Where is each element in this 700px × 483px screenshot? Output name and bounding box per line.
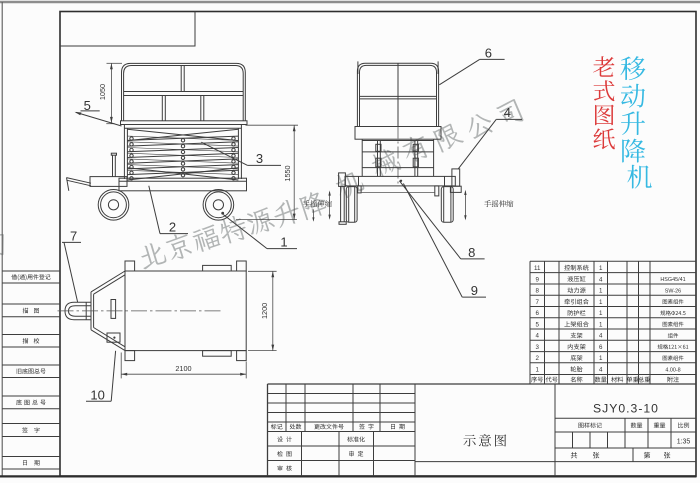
svg-text:7: 7 [70,228,77,243]
svg-text:1: 1 [599,288,603,295]
svg-text:8: 8 [468,245,475,260]
svg-text:6: 6 [599,344,603,351]
svg-text:4: 4 [504,105,511,120]
svg-text:1: 1 [535,367,539,374]
svg-text:1: 1 [599,299,603,306]
svg-text:5: 5 [535,321,539,328]
svg-text:6: 6 [485,46,492,61]
svg-text:8: 8 [535,288,539,295]
svg-text:4: 4 [599,276,603,283]
svg-text:1: 1 [599,355,603,362]
svg-text:1: 1 [599,310,603,317]
svg-text:9: 9 [471,283,478,298]
svg-text:3: 3 [535,344,539,351]
svg-text:5: 5 [84,98,91,113]
svg-text:2: 2 [169,219,176,234]
svg-text:1: 1 [599,321,603,328]
svg-text:4: 4 [599,367,603,374]
svg-text:11: 11 [534,265,541,272]
svg-text:6: 6 [535,310,539,317]
svg-text:1050: 1050 [98,84,107,100]
svg-text:2100: 2100 [175,364,191,373]
svg-text:SJY0.3-10: SJY0.3-10 [593,402,659,416]
svg-text:7: 7 [535,299,539,306]
svg-text:1550: 1550 [283,165,292,181]
svg-text:2: 2 [535,355,539,362]
svg-text:SW-26: SW-26 [665,288,681,294]
svg-text:4.00-8: 4.00-8 [665,367,680,373]
svg-text:1: 1 [599,265,603,272]
svg-text:3: 3 [256,151,263,166]
svg-text:1:35: 1:35 [677,439,691,446]
svg-text:10: 10 [90,388,104,403]
svg-text:4: 4 [535,333,539,340]
svg-text:1200: 1200 [260,303,269,319]
svg-text:1: 1 [280,234,287,249]
svg-text:9: 9 [535,276,539,283]
svg-text:4: 4 [599,333,603,340]
svg-text:HSG45/41: HSG45/41 [660,277,685,283]
